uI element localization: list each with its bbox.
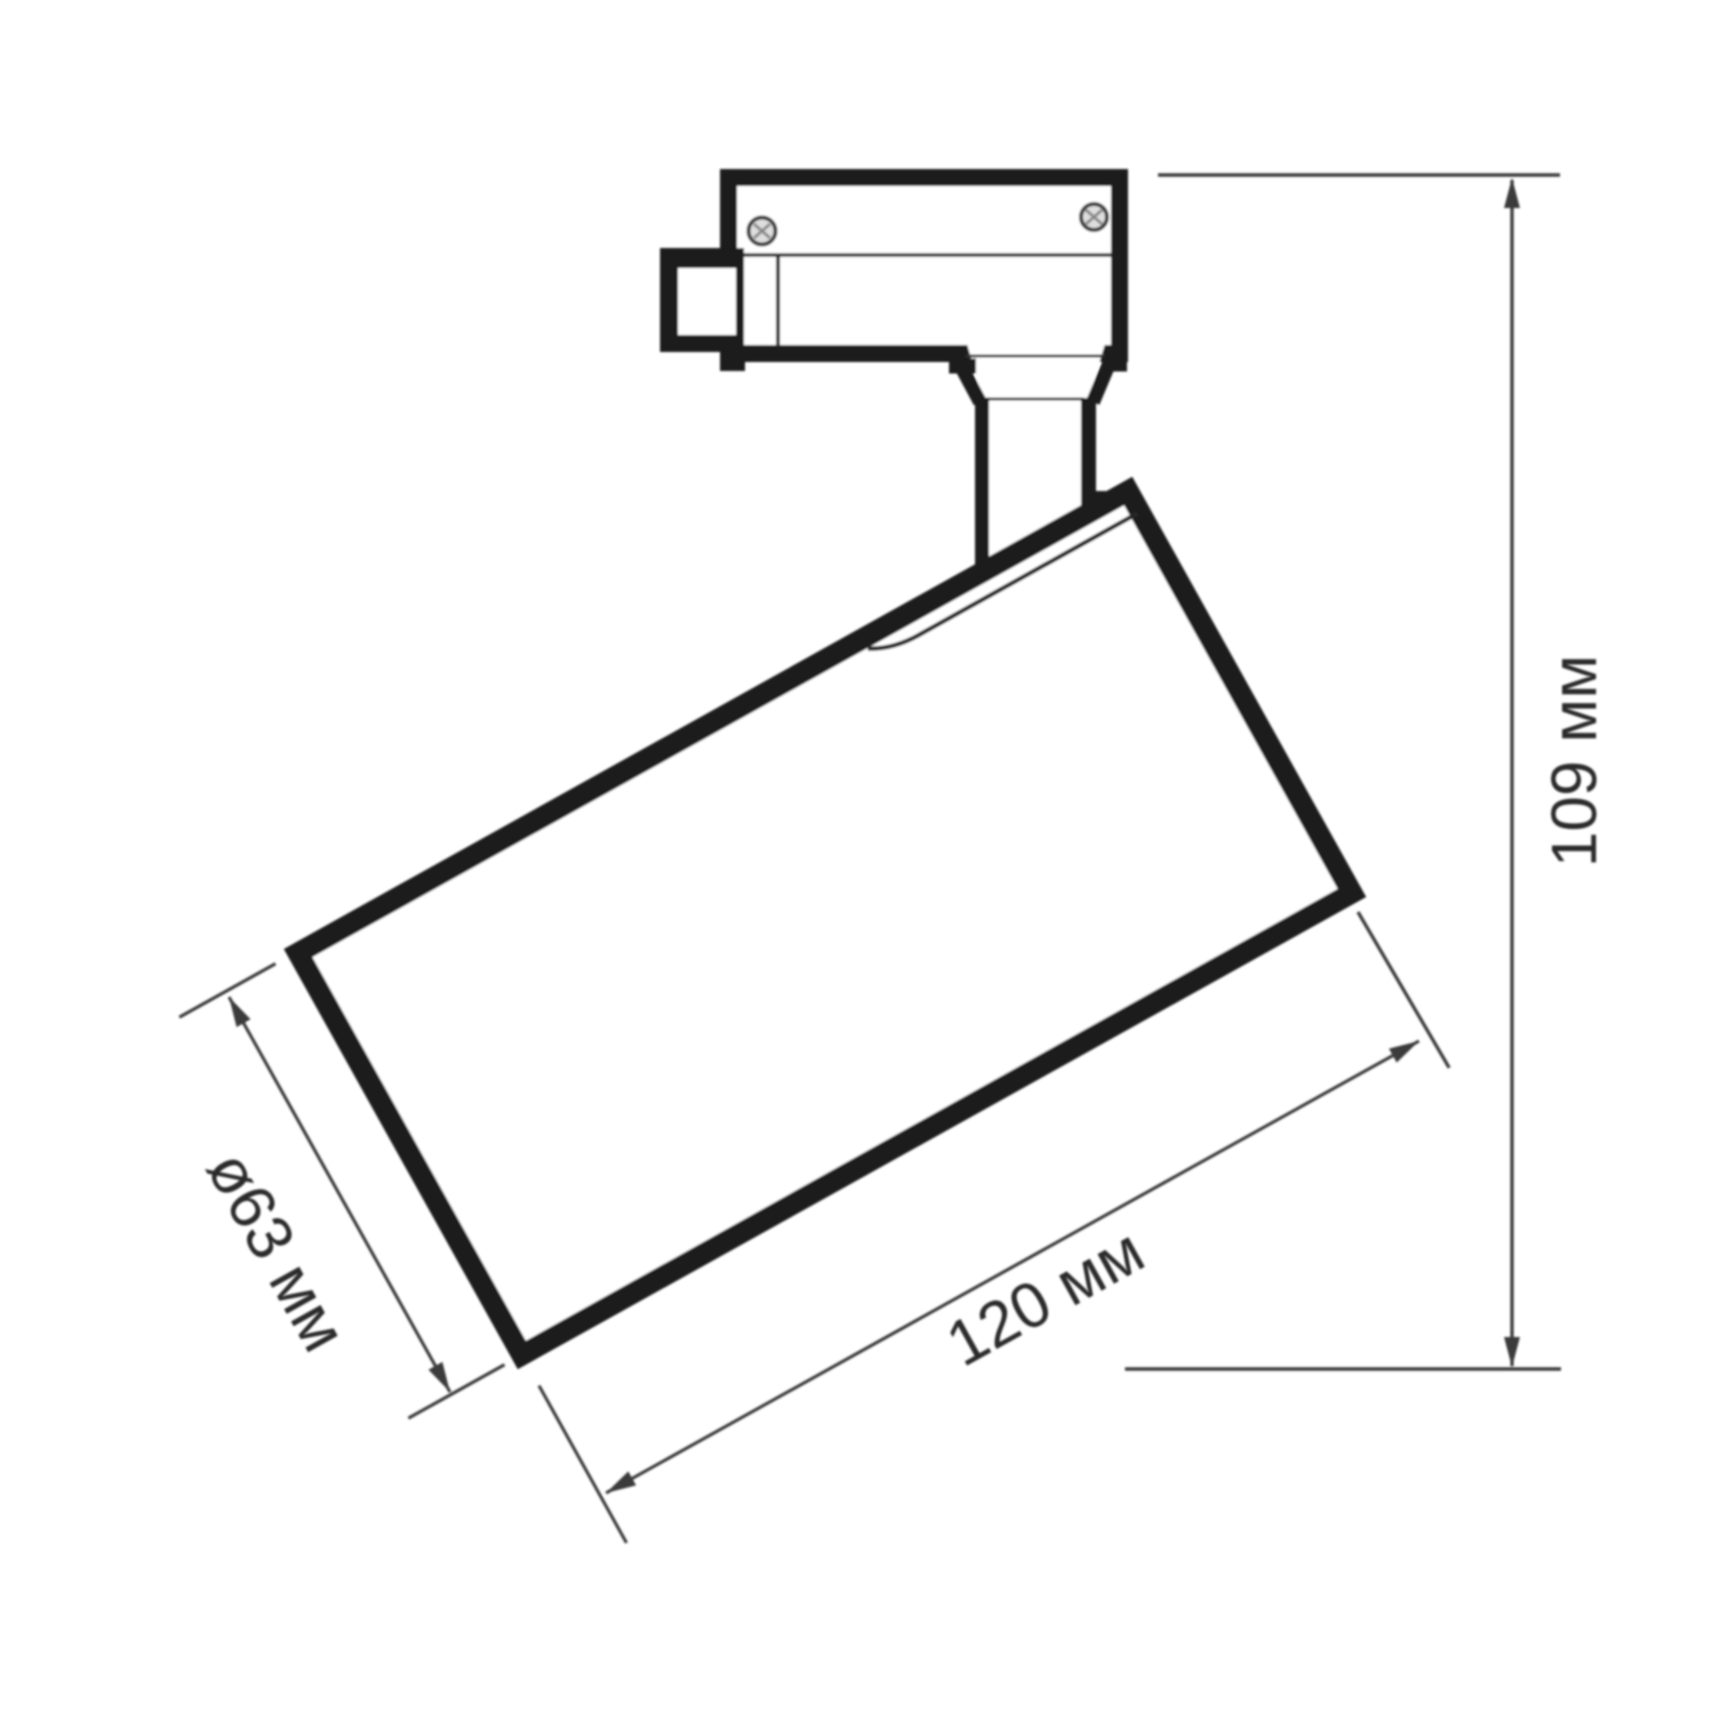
svg-text:109 мм: 109 мм [1538,655,1610,868]
